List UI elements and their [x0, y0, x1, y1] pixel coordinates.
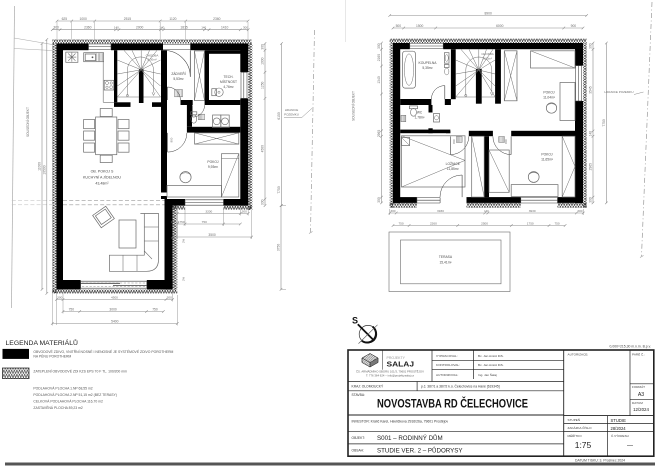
svg-text:OBVODOVÉ ZDIVO, VNITŘNÍ NOSNÉ: OBVODOVÉ ZDIVO, VNITŘNÍ NOSNÉ I NENOSNÉ …: [33, 349, 173, 354]
svg-text:STUDIE VER. 2 – PŮDORYSY: STUDIE VER. 2 – PŮDORYSY: [377, 448, 463, 455]
svg-text:TECH.: TECH.: [224, 75, 234, 79]
svg-text:POKOJ: POKOJ: [207, 160, 219, 164]
svg-text:MÍSTNOST: MÍSTNOST: [220, 80, 237, 84]
svg-text:140: 140: [484, 209, 489, 213]
svg-text:1750: 1750: [527, 221, 534, 225]
svg-text:5,30m²: 5,30m²: [147, 58, 156, 62]
svg-text:1250: 1250: [261, 81, 265, 89]
svg-text:3500: 3500: [208, 233, 216, 237]
svg-text:300: 300: [242, 209, 247, 213]
svg-text:300: 300: [589, 197, 593, 203]
svg-text:800: 800: [170, 137, 174, 142]
svg-text:2%: 2%: [182, 276, 186, 281]
svg-text:28/2024: 28/2024: [611, 426, 627, 431]
svg-text:11,65m²: 11,65m²: [541, 158, 554, 162]
svg-text:NOVOSTAVBA RD ČELECHOVICE: NOVOSTAVBA RD ČELECHOVICE: [377, 398, 528, 411]
svg-text:3930: 3930: [437, 209, 444, 213]
svg-text:2000: 2000: [136, 26, 144, 30]
svg-text:p.č. 387/1 a 387/2 k.ú. Čelech: p.č. 387/1 a 387/2 k.ú. Čelechovice na H…: [421, 384, 500, 389]
svg-text:800: 800: [452, 139, 456, 144]
svg-text:KRAJ: OLOMOUCKÝ: KRAJ: OLOMOUCKÝ: [352, 385, 384, 389]
svg-text:300: 300: [261, 44, 265, 50]
svg-text:300: 300: [243, 26, 248, 30]
svg-text:500: 500: [396, 24, 402, 28]
svg-text:750: 750: [69, 307, 75, 311]
svg-text:AUTORIZACE:: AUTORIZACE:: [568, 353, 589, 357]
svg-text:S001 – RODINNÝ DŮM: S001 – RODINNÝ DŮM: [377, 435, 443, 442]
svg-text:300: 300: [377, 197, 381, 203]
svg-text:11,85m²: 11,85m²: [447, 167, 460, 171]
svg-text:ZATEPLENÍ OBVODOVÉ ZDI KZS EPS: ZATEPLENÍ OBVODOVÉ ZDI KZS EPS 70 F TL. …: [33, 369, 127, 374]
svg-text:POKOJ: POKOJ: [543, 90, 555, 94]
svg-text:VYPRACOVAL:: VYPRACOVAL:: [436, 354, 458, 358]
svg-text:300: 300: [577, 209, 582, 213]
svg-text:300: 300: [53, 26, 59, 30]
svg-text:750: 750: [152, 307, 158, 311]
svg-text:2515: 2515: [124, 17, 132, 21]
svg-text:1410: 1410: [221, 26, 229, 30]
svg-text:PODLAHOVÁ PLOCHA 1.NP 68,55 m2: PODLAHOVÁ PLOCHA 1.NP 68,55 m2: [33, 386, 92, 390]
svg-text:PODLAHOVÁ PLOCHA 2.NP 51,15 m2: PODLAHOVÁ PLOCHA 2.NP 51,15 m2 (BEZ TERA…: [33, 393, 117, 397]
svg-text:STUDIE: STUDIE: [611, 418, 627, 423]
svg-text:KONTROLOVAL:: KONTROLOVAL:: [436, 363, 460, 367]
svg-text:2965: 2965: [589, 163, 593, 171]
svg-text:8900: 8900: [484, 11, 492, 15]
svg-text:2360: 2360: [213, 17, 221, 21]
svg-text:5,35m²: 5,35m²: [422, 66, 433, 70]
svg-text:S: S: [352, 316, 358, 326]
svg-text:STAVBA:: STAVBA:: [352, 393, 366, 397]
svg-text:NA PĚNU POROTHERM: NA PĚNU POROTHERM: [33, 354, 71, 359]
svg-text:1000: 1000: [80, 17, 88, 21]
svg-text:FORMÁT: FORMÁT: [632, 385, 645, 389]
svg-text:3750: 3750: [277, 244, 281, 252]
svg-text:2500: 2500: [481, 221, 488, 225]
svg-text:4500: 4500: [261, 145, 265, 153]
svg-text:11000: 11000: [38, 162, 42, 171]
svg-text:OBJEKT:: OBJEKT:: [352, 436, 365, 440]
svg-text:7750: 7750: [277, 186, 281, 194]
svg-text:750: 750: [202, 220, 207, 224]
svg-text:1:75: 1:75: [575, 440, 592, 450]
svg-text:1,78m²: 1,78m²: [415, 116, 425, 120]
svg-text:1120: 1120: [169, 17, 176, 21]
svg-text:POKOJ: POKOJ: [541, 153, 553, 157]
svg-text:A3: A3: [638, 392, 644, 398]
svg-text:ZASTAVĚNÁ PLOCHA 89,23 m2: ZASTAVĚNÁ PLOCHA 89,23 m2: [33, 405, 83, 410]
svg-text:KOUPELNA: KOUPELNA: [419, 61, 438, 65]
svg-text:1000: 1000: [261, 57, 265, 65]
svg-text:3000: 3000: [109, 307, 117, 311]
svg-text:6150: 6150: [277, 112, 281, 120]
svg-text:2%: 2%: [182, 238, 186, 243]
svg-text:10500: 10500: [42, 165, 46, 174]
svg-text:DATUM TISKU: 3. Prosinec 2024: DATUM TISKU: 3. Prosinec 2024: [575, 459, 625, 463]
svg-text:2260: 2260: [430, 221, 437, 225]
svg-text:4500: 4500: [111, 295, 118, 299]
svg-text:750: 750: [398, 221, 403, 225]
svg-text:ZÁDVEŘÍ: ZÁDVEŘÍ: [171, 71, 185, 76]
svg-text:5,53m²: 5,53m²: [173, 77, 184, 81]
svg-text:15,41m²: 15,41m²: [439, 261, 452, 265]
svg-text:2160: 2160: [377, 54, 381, 62]
svg-text:3200: 3200: [205, 209, 212, 213]
svg-text:1815: 1815: [180, 26, 188, 30]
svg-text:900: 900: [571, 24, 577, 28]
svg-text:140: 140: [114, 26, 119, 30]
svg-text:KUCHYNÍ A JÍDELNOU: KUCHYNÍ A JÍDELNOU: [83, 176, 121, 180]
svg-text:5400: 5400: [111, 319, 119, 323]
svg-text:OB. POKOJ S: OB. POKOJ S: [91, 170, 114, 174]
svg-text:1340: 1340: [377, 76, 381, 84]
svg-text:6000: 6000: [496, 24, 504, 28]
svg-text:DATUM: DATUM: [632, 401, 643, 405]
svg-text:LOŽNICE: LOŽNICE: [446, 161, 461, 166]
svg-text:TERASA: TERASA: [439, 255, 453, 259]
svg-text:SOUSEDNÍ OBJEKT: SOUSEDNÍ OBJEKT: [352, 91, 356, 121]
svg-text:11,04m²: 11,04m²: [543, 96, 556, 100]
svg-text:0,000=215,30 m.n.m. B.p.v.: 0,000=215,30 m.n.m. B.p.v.: [610, 344, 652, 348]
svg-text:T: 776 364 624 – info@projekty: T: 776 364 624 – info@projektysalaj.cz: [366, 374, 415, 378]
svg-text:300: 300: [167, 295, 172, 299]
svg-text:INVESTOR: Králíč Karel, Havlíč: INVESTOR: Králíč Karel, Havlíčkova 2916/…: [352, 420, 449, 424]
svg-text:150: 150: [171, 220, 176, 224]
svg-text:POZEMKU: POZEMKU: [284, 112, 299, 116]
svg-text:CELKOVÁ PODLAHOVÁ PLOCHA 116,7: CELKOVÁ PODLAHOVÁ PLOCHA 116,70 m2: [33, 399, 103, 403]
svg-text:8,25m²: 8,25m²: [483, 56, 492, 60]
svg-text:—: —: [627, 443, 633, 449]
svg-text:3930: 3930: [529, 209, 536, 213]
svg-text:Ing. Jan Šalaj: Ing. Jan Šalaj: [478, 372, 497, 377]
svg-text:HRANICE POZEMKU: HRANICE POZEMKU: [604, 90, 633, 94]
svg-text:AUTORIZOVAL:: AUTORIZOVAL:: [436, 373, 459, 377]
svg-text:MĚŘÍTKO: MĚŘÍTKO: [568, 433, 583, 438]
svg-text:2965: 2965: [377, 130, 381, 138]
svg-text:625: 625: [62, 17, 68, 21]
svg-text:1500: 1500: [416, 24, 424, 28]
svg-text:750: 750: [554, 221, 559, 225]
svg-text:Č.VÝKRESU: Č.VÝKRESU: [611, 433, 629, 438]
svg-text:300: 300: [377, 43, 381, 49]
svg-text:Bc. Jan Antoš DiS.: Bc. Jan Antoš DiS.: [478, 363, 504, 367]
svg-text:300: 300: [57, 295, 62, 299]
svg-text:4,76m²: 4,76m²: [223, 85, 234, 89]
svg-text:LEGENDA MATERIÁLŮ: LEGENDA MATERIÁLŮ: [6, 338, 78, 347]
svg-text:WC: WC: [417, 111, 423, 115]
svg-text:9,93m²: 9,93m²: [208, 165, 219, 169]
svg-text:140: 140: [201, 26, 206, 30]
svg-text:SOUSEDNÍ OBJEKT: SOUSEDNÍ OBJEKT: [26, 107, 30, 137]
svg-text:300: 300: [589, 43, 593, 49]
svg-text:OBSAH:: OBSAH:: [352, 449, 365, 453]
svg-text:3545: 3545: [589, 86, 593, 94]
svg-text:43,48m²: 43,48m²: [95, 182, 109, 186]
svg-text:300: 300: [390, 209, 395, 213]
svg-text:1750: 1750: [178, 220, 185, 224]
svg-text:ZAKÁZKA ČÍSLO: ZAKÁZKA ČÍSLO: [568, 425, 593, 430]
svg-text:Bc. Jan Antoš DiS.: Bc. Jan Antoš DiS.: [478, 354, 504, 358]
svg-text:PARÉ Č.:: PARÉ Č.:: [632, 352, 645, 357]
svg-text:2360: 2360: [84, 26, 92, 30]
svg-text:300: 300: [261, 199, 265, 205]
svg-text:140: 140: [589, 131, 593, 137]
svg-text:7750: 7750: [602, 119, 606, 127]
svg-text:STUPEŇ: STUPEŇ: [568, 418, 581, 422]
svg-text:12/2024: 12/2024: [633, 407, 649, 412]
svg-text:SALAJ: SALAJ: [387, 359, 415, 368]
